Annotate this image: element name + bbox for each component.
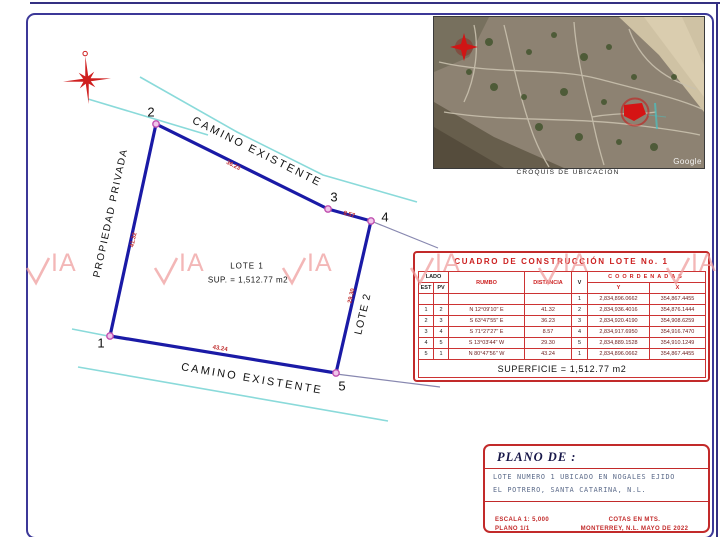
cell-y: 2,834,896.0662 — [588, 349, 650, 360]
cell-v: 4 — [572, 327, 588, 338]
vertex-label-5: 5 — [338, 379, 345, 394]
cell-y: 2,834,920.4190 — [588, 316, 650, 327]
col-header-x: X — [650, 283, 706, 294]
vertex-label-1: 1 — [97, 336, 104, 351]
cell-v: 1 — [572, 349, 588, 360]
cell-pv: 2 — [434, 305, 449, 316]
plan-description-line2: EL POTRERO, SANTA CATARINA, N.L. — [493, 485, 708, 495]
escala-label: ESCALA 1: 5,000 — [495, 516, 549, 525]
title-block-divider — [485, 501, 708, 502]
cell-x: 354,867.4455 — [650, 349, 706, 360]
cell-distancia: 8.57 — [525, 327, 572, 338]
cell-x: 354,916.7470 — [650, 327, 706, 338]
table-grid: LADO RUMBO DISTANCIA V COORDENADAS EST P… — [418, 271, 706, 378]
vertex-label-2: 2 — [147, 105, 154, 120]
col-header-y: Y — [588, 283, 650, 294]
vertex-label-3: 3 — [330, 190, 337, 205]
cell-rumbo: S 63°47'55" E — [449, 316, 525, 327]
col-header-distancia: DISTANCIA — [525, 272, 572, 294]
boundary-extension-lote2 — [371, 221, 438, 248]
cell-x: 354,908.6259 — [650, 316, 706, 327]
cell-x: 354,910.1249 — [650, 338, 706, 349]
col-header-rumbo: RUMBO — [449, 272, 525, 294]
cell-y: 2,834,889.1528 — [588, 338, 650, 349]
cell-pv: 5 — [434, 338, 449, 349]
lot-polygon — [110, 124, 371, 373]
north-star-icon — [61, 50, 113, 106]
table-row: 5 1 N 80°47'56" W 43.24 1 2,834,896.0662… — [419, 349, 706, 360]
cell-y: 2,834,896.0662 — [588, 294, 650, 305]
cell-distancia: 41.32 — [525, 305, 572, 316]
cell-pv: 3 — [434, 316, 449, 327]
cell-v: 2 — [572, 305, 588, 316]
cell-distancia: 43.24 — [525, 349, 572, 360]
table-row: 1 2,834,896.0662 354,867.4455 — [419, 294, 706, 305]
inset-caption: CROQUIS DE UBICACION — [433, 169, 703, 176]
label-lote1-superficie: SUP. = 1,512.77 m2 — [208, 276, 288, 285]
construction-table: CUADRO DE CONSTRUCCIÓN LOTE No. 1 LADO R… — [413, 251, 710, 382]
cell-distancia — [525, 294, 572, 305]
cell-y: 2,834,936.4016 — [588, 305, 650, 316]
col-header-est: EST — [419, 283, 434, 294]
cell-rumbo: S 71°27'27" E — [449, 327, 525, 338]
google-watermark: Google — [673, 157, 702, 166]
col-header-v: V — [572, 272, 588, 294]
units-date-info: COTAS EN MTS. MONTERREY, N.L. MAYO DE 20… — [567, 516, 702, 534]
cell-est: 4 — [419, 338, 434, 349]
cell-rumbo: N 12°09'10" E — [449, 305, 525, 316]
survey-plan-sheet: CAMINO EXISTENTE CAMINO EXISTENTE PROPIE… — [0, 0, 720, 537]
table-row: 1 2 N 12°09'10" E 41.32 2 2,834,936.4016… — [419, 305, 706, 316]
cell-v: 3 — [572, 316, 588, 327]
label-lote1: LOTE 1 — [230, 262, 264, 271]
cell-distancia: 29.30 — [525, 338, 572, 349]
cell-pv — [434, 294, 449, 305]
cell-v: 1 — [572, 294, 588, 305]
cell-y: 2,834,917.6950 — [588, 327, 650, 338]
cell-v: 5 — [572, 338, 588, 349]
superficie-total: SUPERFICIE = 1,512.77 m2 — [419, 360, 706, 378]
cell-x: 354,867.4455 — [650, 294, 706, 305]
table-row: 3 4 S 71°27'27" E 8.57 4 2,834,917.6950 … — [419, 327, 706, 338]
plano-number: PLANO 1/1 — [495, 525, 549, 534]
cell-est: 1 — [419, 305, 434, 316]
table-row: 2 3 S 63°47'55" E 36.23 3 2,834,920.4190… — [419, 316, 706, 327]
plano-de-heading: PLANO DE : — [497, 450, 708, 465]
col-header-pv: PV — [434, 283, 449, 294]
cell-est — [419, 294, 434, 305]
col-header-lado: LADO — [419, 272, 449, 283]
scale-info: ESCALA 1: 5,000 PLANO 1/1 — [495, 516, 549, 534]
vertex-label-4: 4 — [381, 210, 388, 225]
cell-pv: 1 — [434, 349, 449, 360]
cell-est: 5 — [419, 349, 434, 360]
cell-est: 2 — [419, 316, 434, 327]
table-title: CUADRO DE CONSTRUCCIÓN LOTE No. 1 — [415, 253, 708, 271]
cell-rumbo — [449, 294, 525, 305]
cell-rumbo: N 80°47'56" W — [449, 349, 525, 360]
col-header-coordenadas: COORDENADAS — [588, 272, 706, 283]
cell-distancia: 36.23 — [525, 316, 572, 327]
title-block-divider — [485, 468, 708, 469]
title-block: PLANO DE : LOTE NUMERO 1 UBICADO EN NOGA… — [483, 444, 710, 533]
cell-x: 354,876.1444 — [650, 305, 706, 316]
place-date-label: MONTERREY, N.L. MAYO DE 2022 — [567, 525, 702, 534]
cell-rumbo: S 13°03'44" W — [449, 338, 525, 349]
table-row: 4 5 S 13°03'44" W 29.30 5 2,834,889.1528… — [419, 338, 706, 349]
plan-description-line1: LOTE NUMERO 1 UBICADO EN NOGALES EJIDO — [493, 472, 708, 482]
cotas-label: COTAS EN MTS. — [567, 516, 702, 525]
location-satellite-inset: Google — [433, 16, 705, 169]
cell-est: 3 — [419, 327, 434, 338]
cell-pv: 4 — [434, 327, 449, 338]
